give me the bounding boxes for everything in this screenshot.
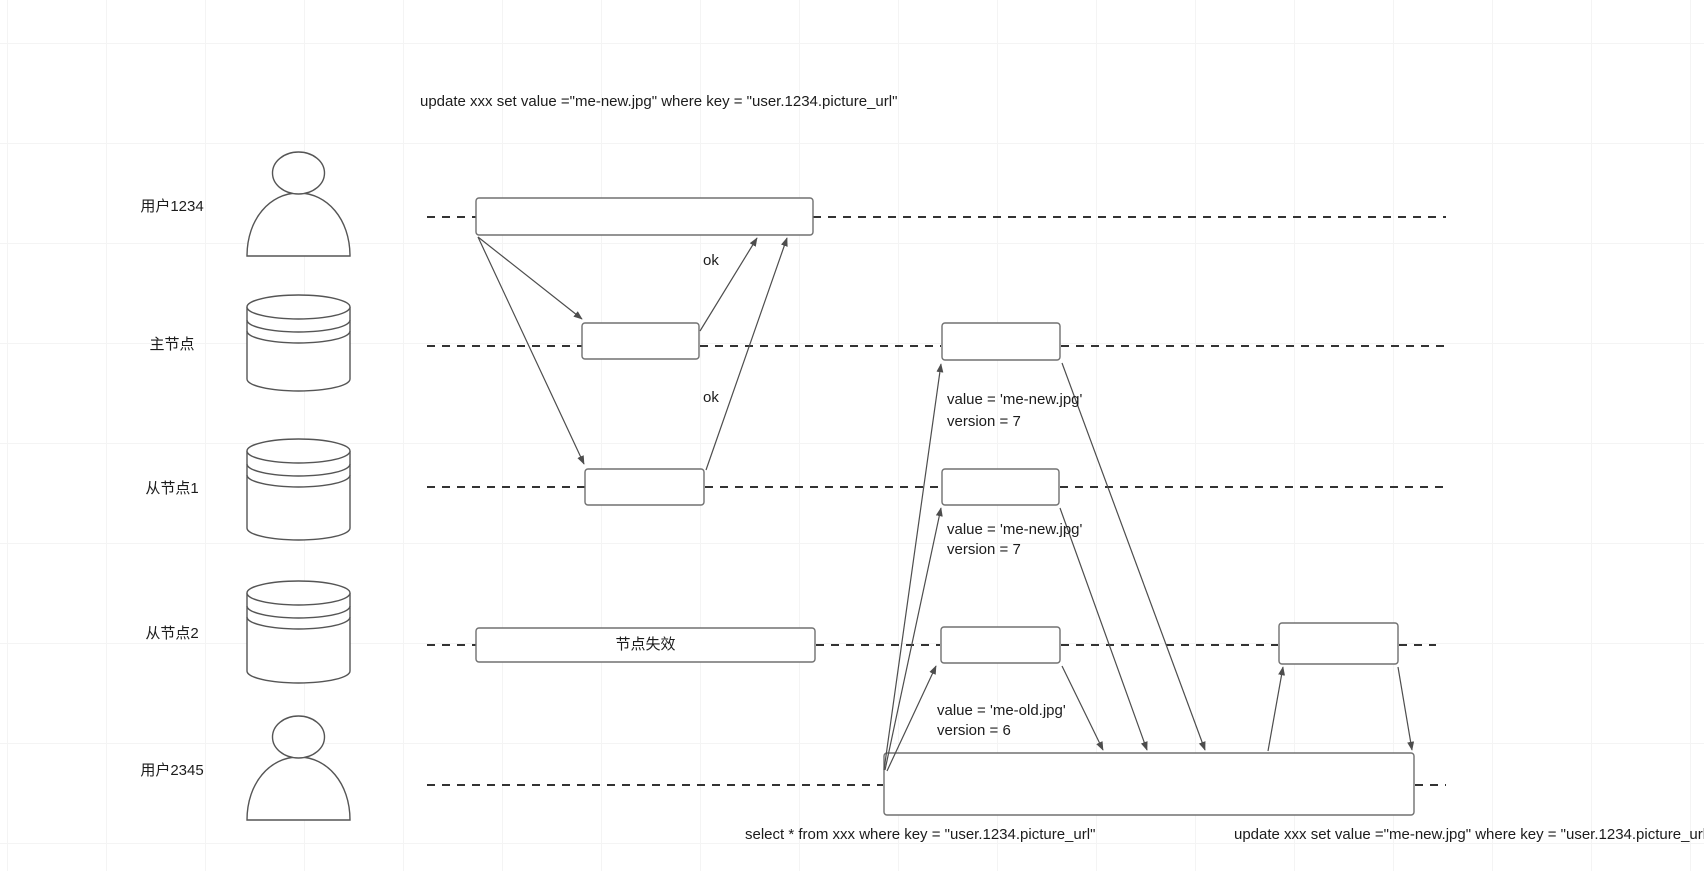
arrow-master-reply-user2345 bbox=[1062, 363, 1205, 750]
lane-label-user1234: 用户1234 bbox=[117, 198, 227, 215]
top-sql-statement: update xxx set value ="me-new.jpg" where… bbox=[420, 93, 897, 110]
master-version-annotation: version = 7 bbox=[947, 413, 1021, 430]
arrow-slave1-reply-user2345 bbox=[1060, 508, 1147, 750]
lane-label-master-node: 主节点 bbox=[117, 336, 227, 353]
person-icon-user1234 bbox=[247, 152, 350, 256]
arrow-user1234-to-slave1 bbox=[478, 237, 584, 464]
bottom-right-sql-statement: update xxx set value ="me-new.jpg" where… bbox=[1234, 826, 1704, 843]
diagram-shapes-layer bbox=[0, 0, 1704, 871]
arrow-slave1-ok-reply bbox=[706, 238, 787, 470]
ok-label-slave1: ok bbox=[703, 389, 719, 406]
lane-label-user2345: 用户2345 bbox=[117, 762, 227, 779]
box-slave1-read bbox=[942, 469, 1059, 505]
database-icon-slave-node2 bbox=[247, 581, 350, 683]
database-icon-master-node bbox=[247, 295, 350, 391]
arrow-user1234-to-master bbox=[478, 237, 582, 319]
diagram-canvas: update xxx set value ="me-new.jpg" where… bbox=[0, 0, 1704, 871]
arrow-user2345-select-master bbox=[884, 364, 941, 770]
box-slave1-replicate bbox=[585, 469, 704, 505]
lane-label-slave-node1: 从节点1 bbox=[117, 480, 227, 497]
master-value-annotation: value = 'me-new.jpg' bbox=[947, 391, 1082, 408]
node-fail-box-label: 节点失效 bbox=[476, 636, 815, 653]
ok-label-master: ok bbox=[703, 252, 719, 269]
box-user1234-update-activation bbox=[476, 198, 813, 235]
box-master-write bbox=[582, 323, 699, 359]
slave1-value-annotation: value = 'me-new.jpg' bbox=[947, 521, 1082, 538]
slave1-version-annotation: version = 7 bbox=[947, 541, 1021, 558]
lane-label-slave-node2: 从节点2 bbox=[117, 625, 227, 642]
person-icon-user2345 bbox=[247, 716, 350, 820]
box-user2345-activation bbox=[884, 753, 1414, 815]
arrow-slave2-reply-user2345 bbox=[1062, 666, 1103, 750]
box-master-read bbox=[942, 323, 1060, 360]
database-icon-slave-node1 bbox=[247, 439, 350, 540]
slave2-value-annotation: value = 'me-old.jpg' bbox=[937, 702, 1066, 719]
box-slave2-update bbox=[1279, 623, 1398, 664]
bottom-left-sql-statement: select * from xxx where key = "user.1234… bbox=[745, 826, 1095, 843]
arrow-user2345-update-slave2 bbox=[1268, 667, 1283, 751]
slave2-version-annotation: version = 6 bbox=[937, 722, 1011, 739]
box-slave2-read bbox=[941, 627, 1060, 663]
arrow-slave2-update-reply bbox=[1398, 667, 1412, 750]
arrow-user2345-select-slave1 bbox=[885, 508, 941, 770]
